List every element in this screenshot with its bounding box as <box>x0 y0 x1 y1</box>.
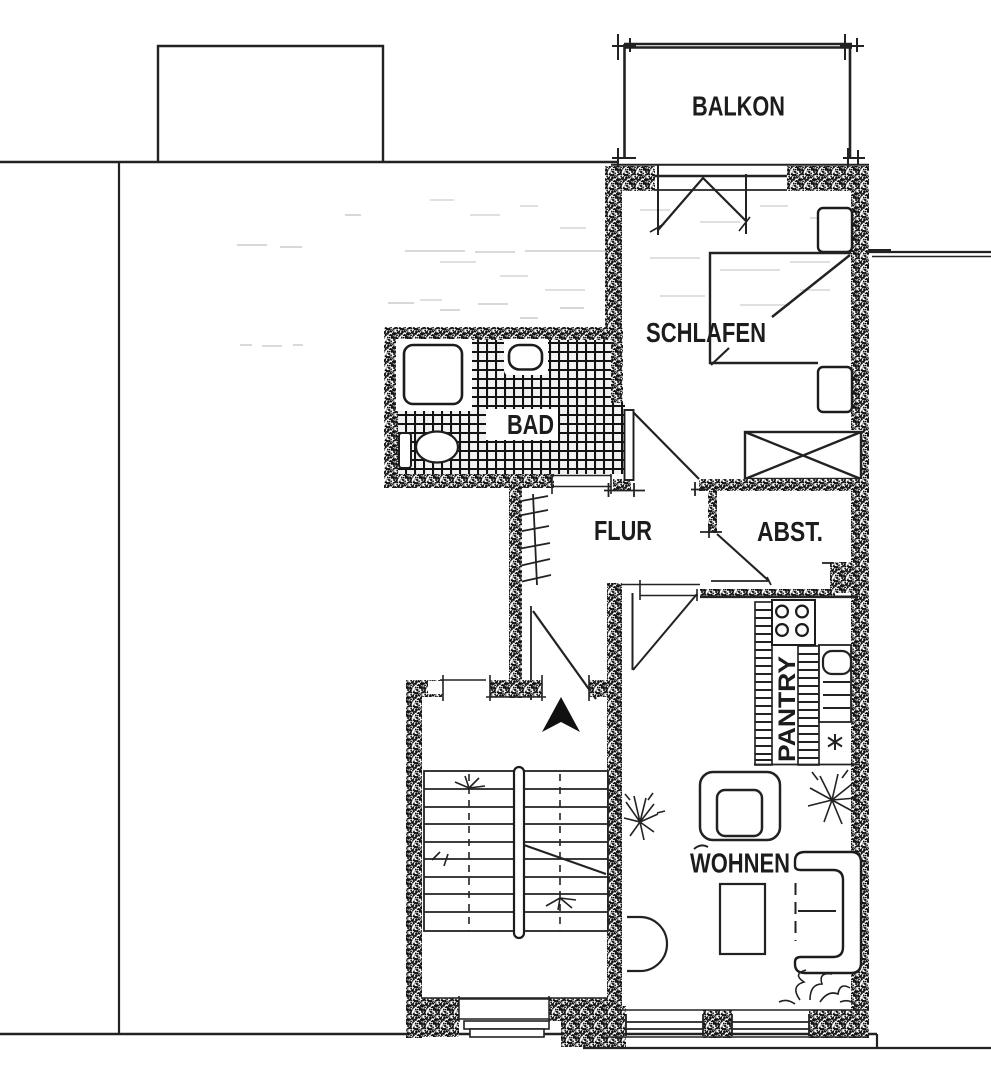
svg-text:WOHNEN: WOHNEN <box>690 848 790 879</box>
svg-text:SCHLAFEN: SCHLAFEN <box>646 317 766 348</box>
svg-text:ABST.: ABST. <box>757 516 823 547</box>
svg-text:PANTRY: PANTRY <box>774 656 801 762</box>
svg-text:BALKON: BALKON <box>692 91 785 122</box>
svg-text:FLUR: FLUR <box>594 515 652 546</box>
svg-text:BAD: BAD <box>507 409 554 440</box>
